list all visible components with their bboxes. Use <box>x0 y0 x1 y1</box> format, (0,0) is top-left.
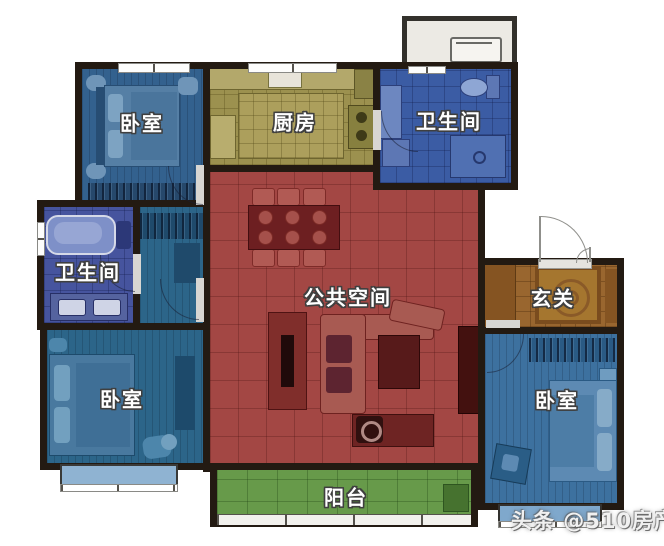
floor-plan: 卧室 厨房 卫生间 卫生间 公共空间 玄关 卧室 卧室 阳台 头条 @510房产… <box>0 0 664 546</box>
dining-chair-icon <box>252 249 275 267</box>
bay-window <box>60 464 178 486</box>
speaker-icon <box>356 416 383 443</box>
room-public-space <box>203 158 485 472</box>
cabinet-icon <box>605 269 617 323</box>
shelving-icon <box>174 243 200 283</box>
dresser-icon <box>175 356 195 430</box>
dining-chair-icon <box>277 188 300 206</box>
headboard-icon <box>96 87 104 165</box>
room-label-bathroom-top-right: 卫生间 <box>416 106 482 135</box>
window <box>37 222 45 256</box>
pillow-icon <box>54 407 70 443</box>
balcony-window-rail <box>217 514 471 525</box>
nightstand-icon <box>86 163 106 179</box>
stool-icon <box>161 434 177 450</box>
sofa-cushion-icon <box>326 367 352 393</box>
pillow-icon <box>597 433 612 471</box>
room-label-bedroom-bottom-left: 卧室 <box>100 384 144 413</box>
room-label-bathroom-left: 卫生间 <box>55 257 121 286</box>
watermark-text: 头条 @510房产网 <box>511 505 664 535</box>
tv-cabinet-icon <box>268 312 307 410</box>
dining-chair-icon <box>277 249 300 267</box>
room-label-bedroom-bottom-right: 卧室 <box>535 385 579 414</box>
dining-chair-icon <box>303 249 326 267</box>
pillow-icon <box>54 365 70 401</box>
coffee-table-icon <box>378 335 420 389</box>
kitchen-sink-icon <box>268 72 302 88</box>
shower-icon <box>450 135 506 178</box>
dining-table-icon <box>248 205 340 250</box>
sofa-cushion-icon <box>326 335 352 363</box>
sink-icon <box>58 299 86 316</box>
stove-icon <box>348 105 375 149</box>
tall-cabinet-icon <box>354 69 375 99</box>
room-label-kitchen: 厨房 <box>273 107 317 136</box>
wardrobe-icon <box>529 338 615 362</box>
wardrobe-icon <box>140 213 203 239</box>
window <box>118 63 190 73</box>
armchair-icon <box>490 443 532 485</box>
nightstand-icon <box>49 338 67 352</box>
planter-icon <box>443 484 469 512</box>
window <box>408 66 446 74</box>
ac-unit-icon <box>450 37 502 63</box>
room-label-bedroom-top-left: 卧室 <box>120 108 164 137</box>
toilet-tank-icon <box>486 75 500 99</box>
fridge-icon <box>210 115 236 159</box>
sofa-icon <box>320 314 366 414</box>
bathtub-icon <box>46 215 116 255</box>
sink-icon <box>93 299 121 316</box>
pillow-icon <box>597 389 612 427</box>
dining-chair-icon <box>303 188 326 206</box>
toilet-icon <box>460 78 488 97</box>
dining-chair-icon <box>252 188 275 206</box>
toilet-icon <box>116 221 131 249</box>
room-label-balcony: 阳台 <box>324 482 368 511</box>
shoe-cabinet-icon <box>485 265 516 327</box>
room-label-public-space: 公共空间 <box>304 282 392 311</box>
tv-icon <box>458 326 479 414</box>
window <box>248 63 337 73</box>
double-vanity-icon <box>50 293 128 321</box>
room-label-entry-hall: 玄关 <box>531 283 575 312</box>
armchair-icon <box>178 77 198 95</box>
